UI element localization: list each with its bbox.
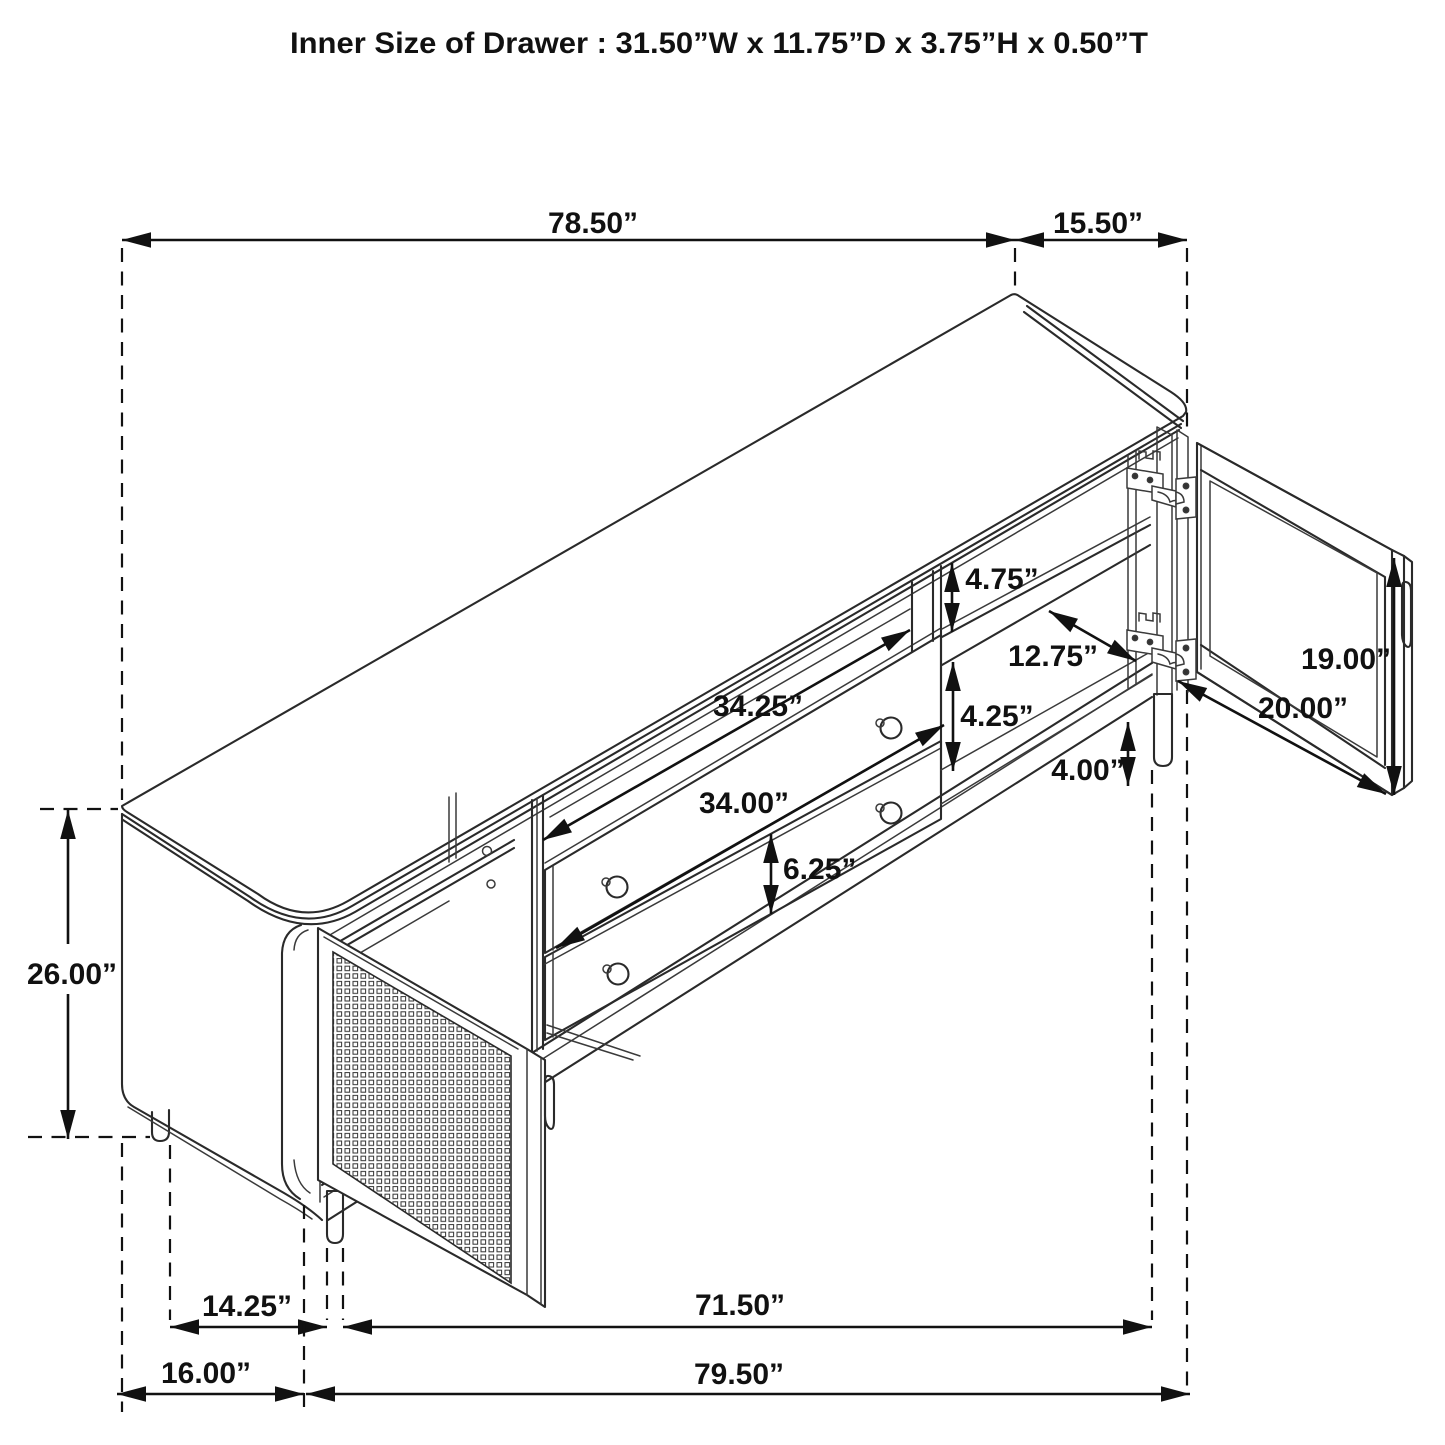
svg-text:4.25”: 4.25” (960, 700, 1033, 733)
svg-text:14.25”: 14.25” (202, 1290, 292, 1323)
svg-text:6.25”: 6.25” (783, 853, 856, 886)
svg-text:78.50”: 78.50” (548, 207, 638, 240)
svg-text:16.00”: 16.00” (161, 1357, 251, 1390)
svg-text:20.00”: 20.00” (1258, 692, 1348, 725)
svg-text:26.00”: 26.00” (27, 958, 117, 991)
svg-text:79.50”: 79.50” (694, 1358, 784, 1391)
svg-text:34.25”: 34.25” (713, 690, 803, 723)
svg-text:34.00”: 34.00” (699, 787, 789, 820)
svg-text:4.00”: 4.00” (1051, 754, 1124, 787)
svg-text:15.50”: 15.50” (1053, 207, 1143, 240)
svg-text:Inner Size of Drawer : 31.50”W: Inner Size of Drawer : 31.50”W x 11.75”D… (290, 27, 1148, 60)
svg-text:19.00”: 19.00” (1301, 643, 1391, 676)
svg-text:71.50”: 71.50” (695, 1289, 785, 1322)
svg-text:4.75”: 4.75” (965, 563, 1038, 596)
svg-text:12.75”: 12.75” (1008, 640, 1098, 673)
